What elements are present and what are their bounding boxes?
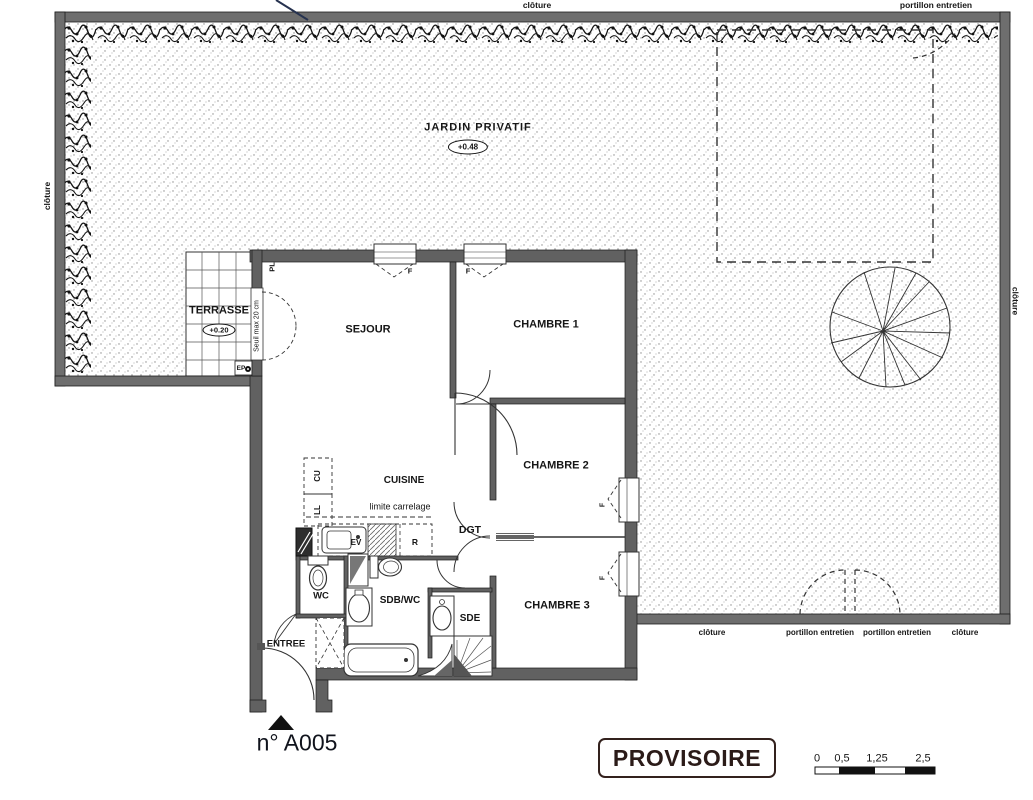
cu-label: CU — [314, 470, 322, 482]
floor-plan-canvas: clôture portillon entretien clôture clôt… — [0, 0, 1033, 800]
window-chambre2 — [619, 478, 639, 522]
scale-tick-0: 0 — [814, 754, 820, 765]
cloture-left-label: clôture — [43, 182, 52, 210]
hedge-top — [64, 22, 998, 46]
room-entree-label: ENTREE — [267, 639, 306, 649]
scale-tick-125: 1,25 — [866, 754, 887, 765]
garden-wall-right — [1000, 12, 1010, 624]
terrasse-label: TERRASSE — [189, 306, 249, 317]
window-f-label-sejour: F — [408, 267, 413, 275]
cloture-bottom2-label: clôture — [952, 629, 979, 637]
provisoire-stamp-text: PROVISOIRE — [613, 745, 761, 772]
seuil-label: Seuil max 20 cm — [254, 300, 261, 352]
window-chambre3 — [619, 552, 639, 596]
window-f-label-chambre2: F — [600, 503, 607, 507]
cloture-right-label: clôture — [1011, 287, 1020, 315]
scale-bar — [815, 767, 935, 774]
room-wc-label: WC — [313, 591, 329, 601]
terrasse-level-oval: +0.20 — [203, 324, 236, 337]
jardin-label: JARDIN PRIVATIF — [424, 123, 532, 134]
portillon-bottom2-label: portillon entretien — [863, 629, 931, 637]
wc-toilet — [308, 556, 328, 565]
room-sde-label: SDE — [460, 614, 481, 624]
ll-label: LL — [314, 505, 322, 515]
garden-wall-top — [55, 12, 1010, 22]
hedge-left — [64, 22, 91, 374]
portillon-bottom1-label: portillon entretien — [786, 629, 854, 637]
room-chambre1-label: CHAMBRE 1 — [513, 320, 578, 331]
ep-label: EP — [237, 366, 246, 373]
room-sdb-label: SDB/WC — [380, 596, 421, 606]
scale-tick-05: 0,5 — [834, 754, 849, 765]
floor-plan-drawing — [0, 0, 1033, 800]
cloture-bottom1-label: clôture — [699, 629, 726, 637]
unit-number-label: n° A005 — [257, 732, 338, 755]
garden-wall-bottom-left — [55, 376, 252, 386]
garden-wall-left — [55, 12, 65, 386]
window-chambre1 — [464, 244, 506, 264]
r-label: R — [412, 538, 418, 547]
provisoire-stamp: PROVISOIRE — [598, 738, 776, 778]
ev-label: EV — [351, 539, 362, 547]
window-sejour — [374, 244, 416, 264]
cloture-top-label: clôture — [523, 1, 551, 10]
room-sejour-label: SEJOUR — [345, 325, 390, 336]
entrance-arrow — [268, 715, 294, 730]
garden-wall-bottom-right — [630, 614, 1010, 624]
window-f-label-chambre1: F — [466, 267, 471, 275]
room-chambre2-label: CHAMBRE 2 — [523, 461, 588, 472]
pl-label: PL — [268, 262, 276, 272]
room-cuisine-label: CUISINE — [384, 476, 425, 486]
sdb-toilet — [370, 556, 378, 578]
room-chambre3-label: CHAMBRE 3 — [524, 601, 589, 612]
portillon-top-label: portillon entretien — [900, 1, 972, 10]
room-dgt-label: DGT — [459, 525, 481, 536]
scale-tick-25: 2,5 — [915, 754, 930, 765]
jardin-level-oval: +0.48 — [448, 140, 488, 155]
window-f-label-chambre3: F — [600, 576, 607, 580]
drainer — [368, 524, 396, 556]
limite-carrelage-label: limite carrelage — [369, 503, 430, 512]
